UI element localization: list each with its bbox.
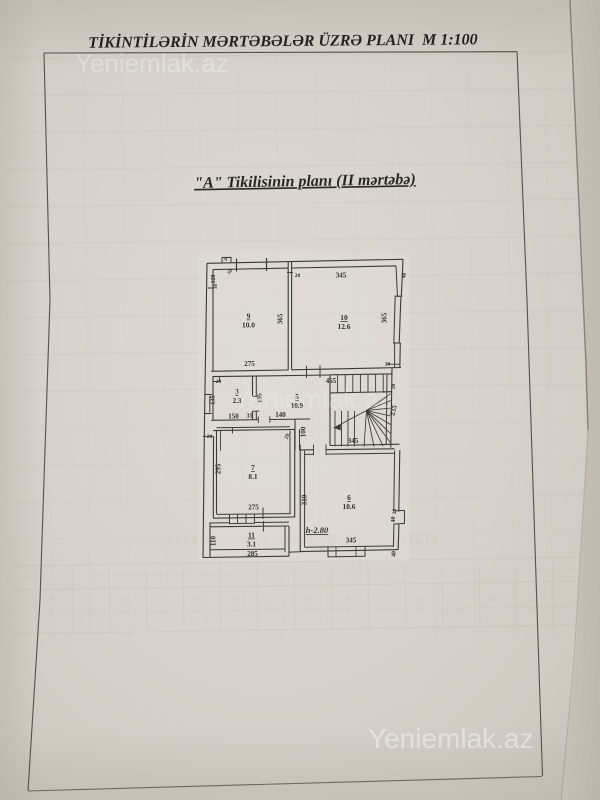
svg-text:laS: laS bbox=[120, 596, 129, 604]
svg-text:ha: ha bbox=[121, 606, 129, 614]
svg-text:laS: laS bbox=[527, 596, 536, 604]
svg-text:laS: laS bbox=[83, 596, 92, 604]
svg-text:11: 11 bbox=[248, 531, 255, 540]
svg-text:Yeniemlak.az: Yeniemlak.az bbox=[233, 384, 393, 414]
svg-text:ha: ha bbox=[306, 606, 314, 614]
svg-text:h-2.80: h-2.80 bbox=[306, 525, 329, 535]
svg-text:310: 310 bbox=[301, 494, 309, 505]
svg-text:6: 6 bbox=[347, 493, 351, 502]
svg-text:285: 285 bbox=[247, 550, 258, 558]
svg-text:275: 275 bbox=[248, 504, 259, 512]
svg-text:12.6: 12.6 bbox=[338, 322, 351, 331]
svg-text:20: 20 bbox=[295, 273, 301, 279]
svg-text:Yeniemlak.az: Yeniemlak.az bbox=[368, 723, 534, 754]
svg-text:3.1: 3.1 bbox=[247, 540, 257, 549]
svg-text:laS: laS bbox=[416, 596, 425, 604]
svg-text:laS: laS bbox=[46, 596, 55, 604]
svg-text:ha: ha bbox=[158, 606, 166, 614]
svg-text:laS: laS bbox=[305, 596, 314, 604]
svg-text:345: 345 bbox=[346, 537, 357, 545]
svg-text:365: 365 bbox=[381, 312, 389, 323]
svg-text:ha: ha bbox=[269, 606, 277, 614]
svg-text:40: 40 bbox=[391, 517, 397, 523]
svg-text:20: 20 bbox=[207, 434, 213, 440]
svg-text:A: A bbox=[224, 257, 228, 263]
svg-text:laS: laS bbox=[379, 596, 388, 604]
svg-text:110: 110 bbox=[210, 535, 218, 546]
svg-text:ha: ha bbox=[84, 606, 92, 614]
svg-text:laS: laS bbox=[490, 596, 499, 604]
svg-text:345: 345 bbox=[348, 437, 359, 445]
svg-text:295: 295 bbox=[215, 463, 223, 474]
svg-text:8.1: 8.1 bbox=[248, 472, 258, 481]
svg-text:35: 35 bbox=[247, 414, 253, 420]
svg-text:120: 120 bbox=[211, 275, 217, 284]
svg-text:30: 30 bbox=[214, 284, 219, 290]
svg-text:275: 275 bbox=[244, 360, 255, 368]
svg-text:laS: laS bbox=[453, 596, 462, 604]
svg-text:ha: ha bbox=[380, 606, 388, 614]
svg-text:ha: ha bbox=[47, 606, 55, 614]
svg-text:9: 9 bbox=[247, 312, 251, 321]
svg-text:laS: laS bbox=[194, 596, 203, 604]
svg-text:ha: ha bbox=[454, 606, 462, 614]
svg-text:ha: ha bbox=[232, 606, 240, 614]
svg-text:345: 345 bbox=[336, 272, 347, 280]
svg-text:laS: laS bbox=[157, 596, 166, 604]
svg-text:135: 135 bbox=[210, 394, 217, 405]
svg-text:ha: ha bbox=[417, 606, 425, 614]
svg-text:40: 40 bbox=[392, 551, 398, 557]
svg-text:10.0: 10.0 bbox=[242, 321, 255, 330]
svg-text:10: 10 bbox=[340, 313, 348, 322]
svg-text:365: 365 bbox=[277, 313, 285, 324]
svg-text:laS: laS bbox=[231, 596, 240, 604]
svg-text:ha: ha bbox=[491, 606, 499, 614]
svg-text:100: 100 bbox=[300, 426, 308, 437]
svg-text:20: 20 bbox=[385, 362, 391, 368]
svg-text:10.6: 10.6 bbox=[343, 502, 356, 511]
svg-text:ha: ha bbox=[528, 606, 536, 614]
svg-text:ha: ha bbox=[343, 606, 351, 614]
svg-text:ha: ha bbox=[195, 606, 203, 614]
svg-text:20: 20 bbox=[392, 509, 398, 515]
svg-text:Yeniemlak.az: Yeniemlak.az bbox=[75, 48, 229, 78]
svg-text:laS: laS bbox=[268, 596, 277, 604]
svg-text:laS: laS bbox=[342, 596, 351, 604]
svg-text:7: 7 bbox=[251, 463, 255, 472]
svg-text:20: 20 bbox=[216, 379, 222, 385]
